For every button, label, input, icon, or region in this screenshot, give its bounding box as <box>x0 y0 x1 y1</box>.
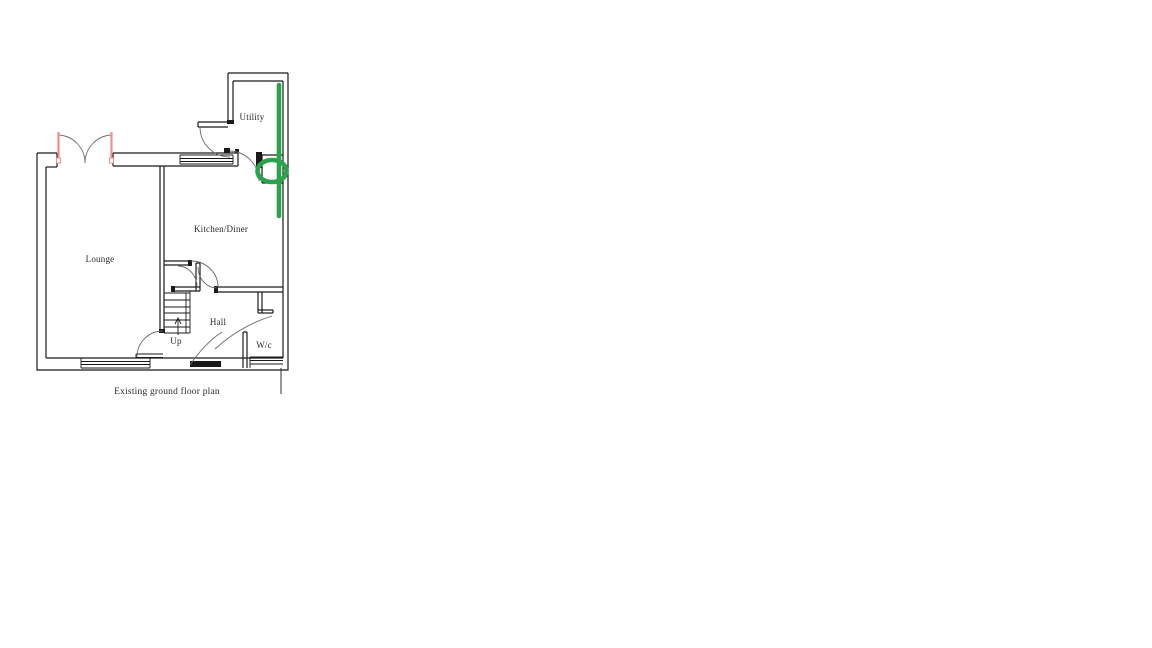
french-door-arc-right <box>85 135 111 163</box>
hall-north-wall <box>214 286 283 293</box>
door-swing-arcs <box>59 127 272 365</box>
green-annotation <box>258 85 287 216</box>
red-door-hinge-right <box>110 158 114 163</box>
front-door-leaf <box>190 361 221 367</box>
kitchen-door-arc <box>198 267 217 288</box>
room-label-wc: W/c <box>256 340 272 350</box>
cupboard-door-arc <box>178 266 197 287</box>
room-label-kitchen-diner: Kitchen/Diner <box>194 224 248 234</box>
stairs-up-arrow <box>175 318 181 335</box>
stairs <box>164 291 190 333</box>
stairs-up-label: Up <box>170 336 182 346</box>
lounge-partition-wall <box>159 166 165 333</box>
room-label-utility: Utility <box>240 112 265 122</box>
wc-bottom-window <box>250 357 283 368</box>
lounge-door-arc <box>137 331 163 357</box>
plan-caption: Existing ground floor plan <box>114 386 220 397</box>
room-label-hall: Hall <box>210 317 227 327</box>
floor-plan-svg: Utility Kitchen/Diner Lounge Hall Up W/c… <box>0 0 1152 648</box>
front-door-arc <box>190 332 222 365</box>
red-door-hinge-left <box>57 158 61 163</box>
room-label-lounge: Lounge <box>86 254 115 264</box>
lounge-door-threshold <box>136 354 163 358</box>
french-door-arc-left <box>59 135 85 163</box>
lounge-bottom-window <box>81 358 150 368</box>
drawing-canvas: Utility Kitchen/Diner Lounge Hall Up W/c… <box>0 0 1152 648</box>
